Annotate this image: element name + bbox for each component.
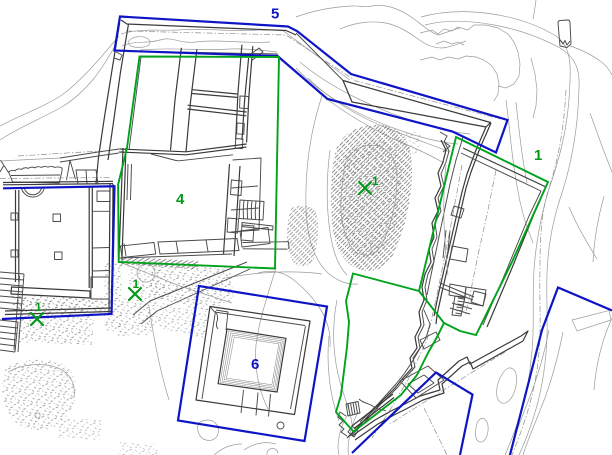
svg-text:5: 5 bbox=[271, 6, 279, 23]
svg-text:6: 6 bbox=[251, 356, 259, 373]
svg-text:1: 1 bbox=[133, 277, 140, 291]
svg-text:1: 1 bbox=[35, 300, 42, 314]
svg-text:1: 1 bbox=[372, 174, 379, 188]
svg-text:1: 1 bbox=[534, 147, 542, 164]
svg-text:4: 4 bbox=[176, 191, 185, 208]
